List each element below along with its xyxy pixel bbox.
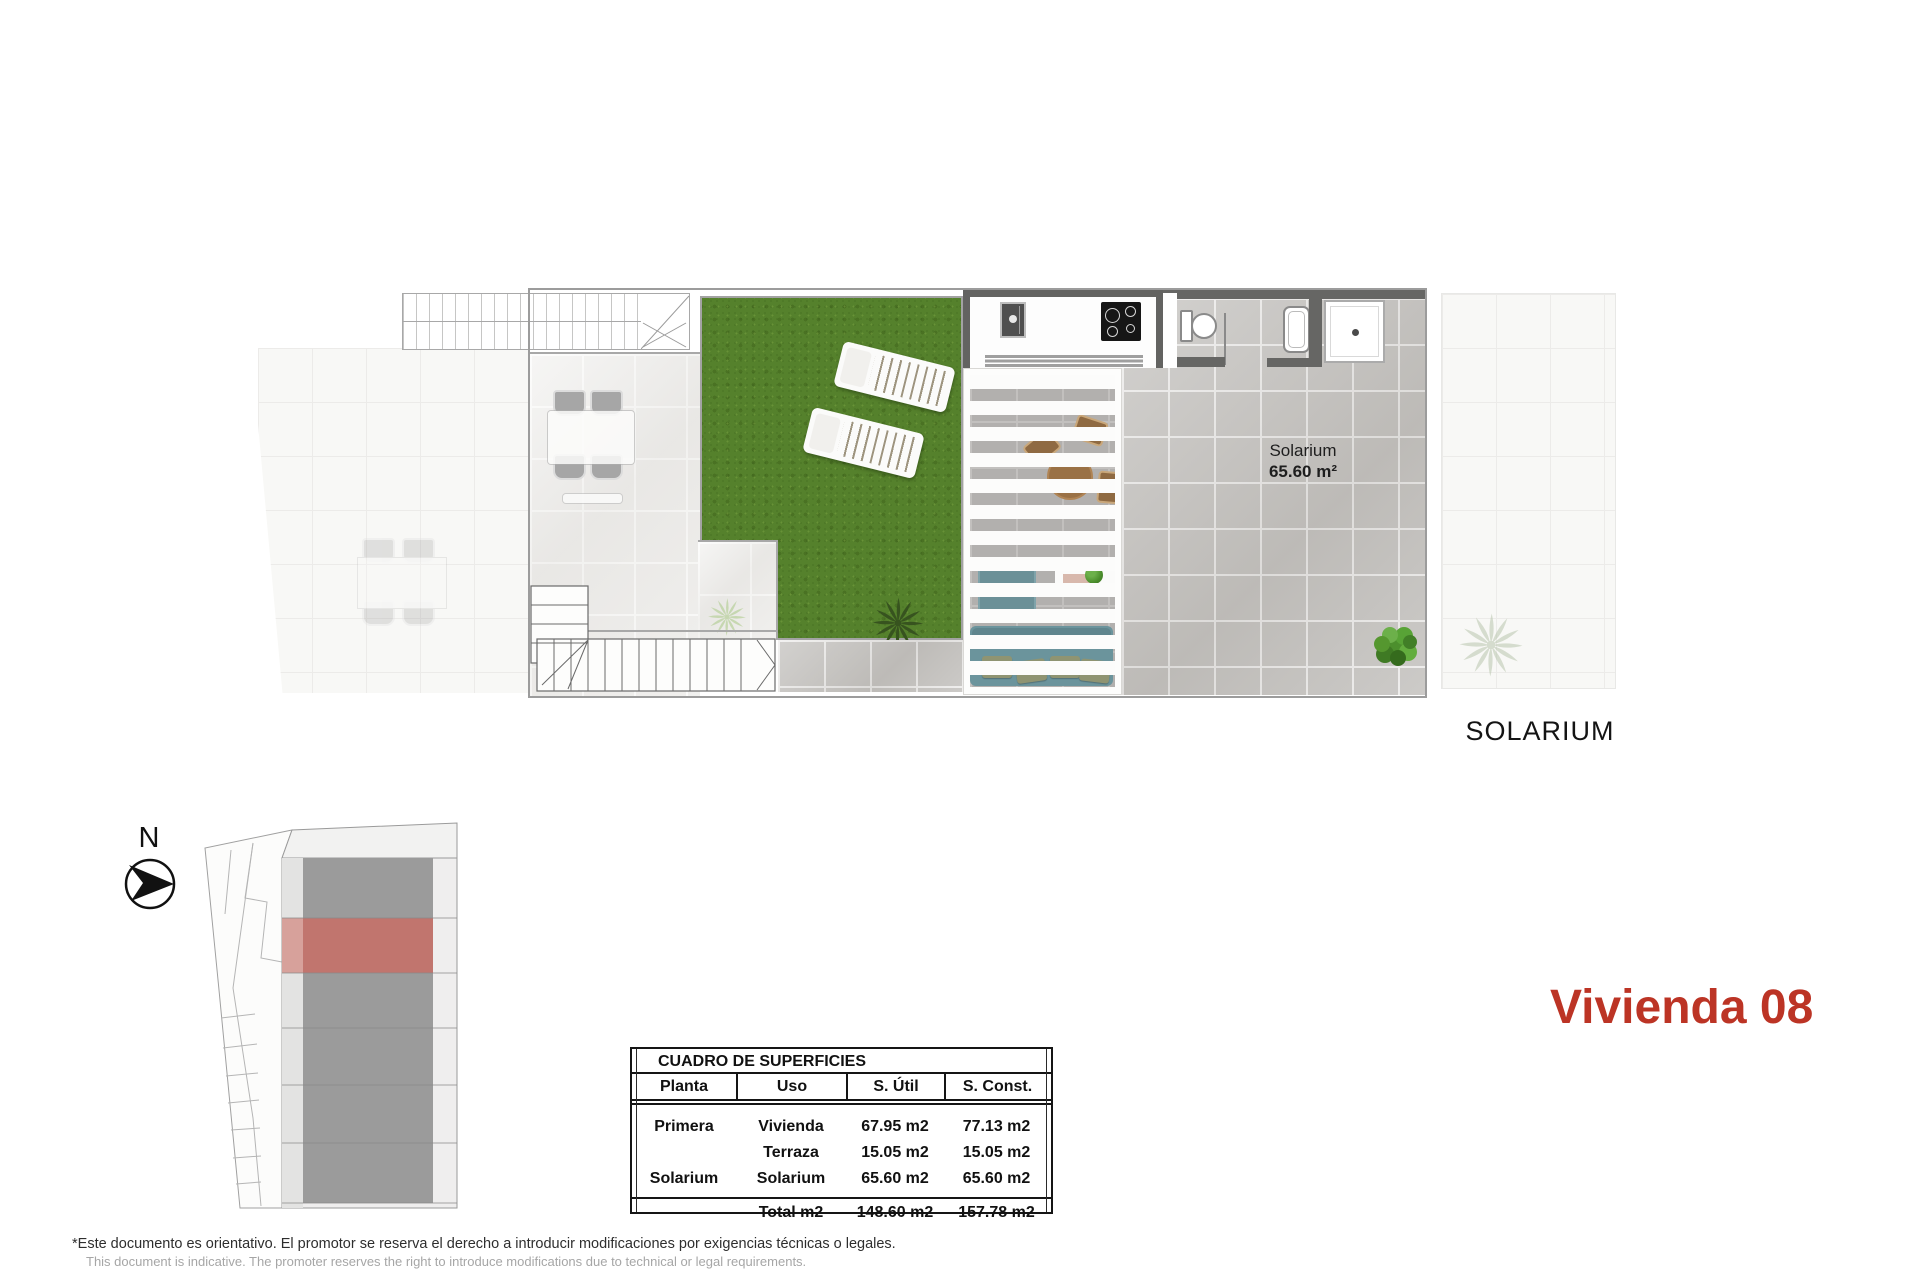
total-util: 148.60 m2 (846, 1199, 944, 1225)
table-row: Solarium Solarium 65.60 m2 65.60 m2 (632, 1166, 1051, 1192)
floor-name-label: SOLARIUM (1430, 716, 1650, 747)
sheet-title: Vivienda 08 (1550, 980, 1813, 1035)
col-sconst: S. Const. (944, 1074, 1049, 1099)
site-key-plan (195, 818, 465, 1215)
ghost-dining-set (362, 538, 442, 630)
disclaimer-es: *Este documento es orientativo. El promo… (72, 1236, 1172, 1252)
ghost-neighbour-left (258, 348, 530, 693)
lower-walkway (778, 640, 963, 692)
footer-disclaimer: *Este documento es orientativo. El promo… (72, 1236, 1172, 1269)
washbasin (1283, 306, 1310, 353)
room-name: Solarium (1228, 440, 1378, 461)
col-sutil: S. Útil (846, 1074, 944, 1099)
table-row: Primera Vivienda 67.95 m2 77.13 m2 (632, 1114, 1051, 1140)
table-row: Terraza 15.05 m2 15.05 m2 (632, 1140, 1051, 1166)
ghost-neighbour-right (1441, 293, 1616, 689)
induction-hob (1101, 302, 1141, 341)
sliding-door-track (985, 355, 1143, 367)
highlight-unit-cell (303, 918, 433, 973)
highlight-unit-cell (282, 918, 303, 973)
sun-lounger (802, 407, 925, 479)
col-uso: Uso (736, 1074, 846, 1099)
sun-lounger (833, 341, 956, 413)
surface-table: CUADRO DE SUPERFICIES Planta Uso S. Útil… (630, 1047, 1053, 1214)
surface-table-header: Planta Uso S. Útil S. Const. (632, 1074, 1051, 1101)
compass-north-label: N (124, 822, 174, 855)
table-total-row: Total m2 148.60 m2 157.78 m2 (632, 1197, 1051, 1225)
col-planta: Planta (632, 1074, 736, 1099)
surface-table-title: CUADRO DE SUPERFICIES (632, 1049, 1051, 1074)
shower-tray (1324, 300, 1385, 363)
compass-icon (122, 856, 178, 912)
room-area: 65.60 m² (1228, 461, 1378, 482)
terrace-table (548, 411, 634, 464)
kitchen-counter (963, 290, 1163, 368)
terrace-bench (563, 494, 622, 503)
solarium-plant-icon (1368, 618, 1424, 674)
louvre-end-fold (641, 294, 689, 349)
top-louvre-strip (402, 293, 690, 350)
disclaimer-en: This document is indicative. The promote… (72, 1254, 1172, 1269)
room-label-solarium: Solarium 65.60 m² (1228, 440, 1378, 483)
pergola (963, 368, 1122, 695)
plan-sheet: Solarium 65.60 m² SOLARIUM N (0, 0, 1920, 1280)
toilet (1180, 310, 1217, 342)
total-const: 157.78 m2 (944, 1199, 1049, 1225)
ghost-palm-icon (1456, 610, 1526, 680)
pergola-slats (970, 375, 1115, 688)
total-label: Total m2 (736, 1199, 846, 1225)
kitchen-sink (1000, 302, 1026, 338)
stairs (530, 585, 778, 697)
